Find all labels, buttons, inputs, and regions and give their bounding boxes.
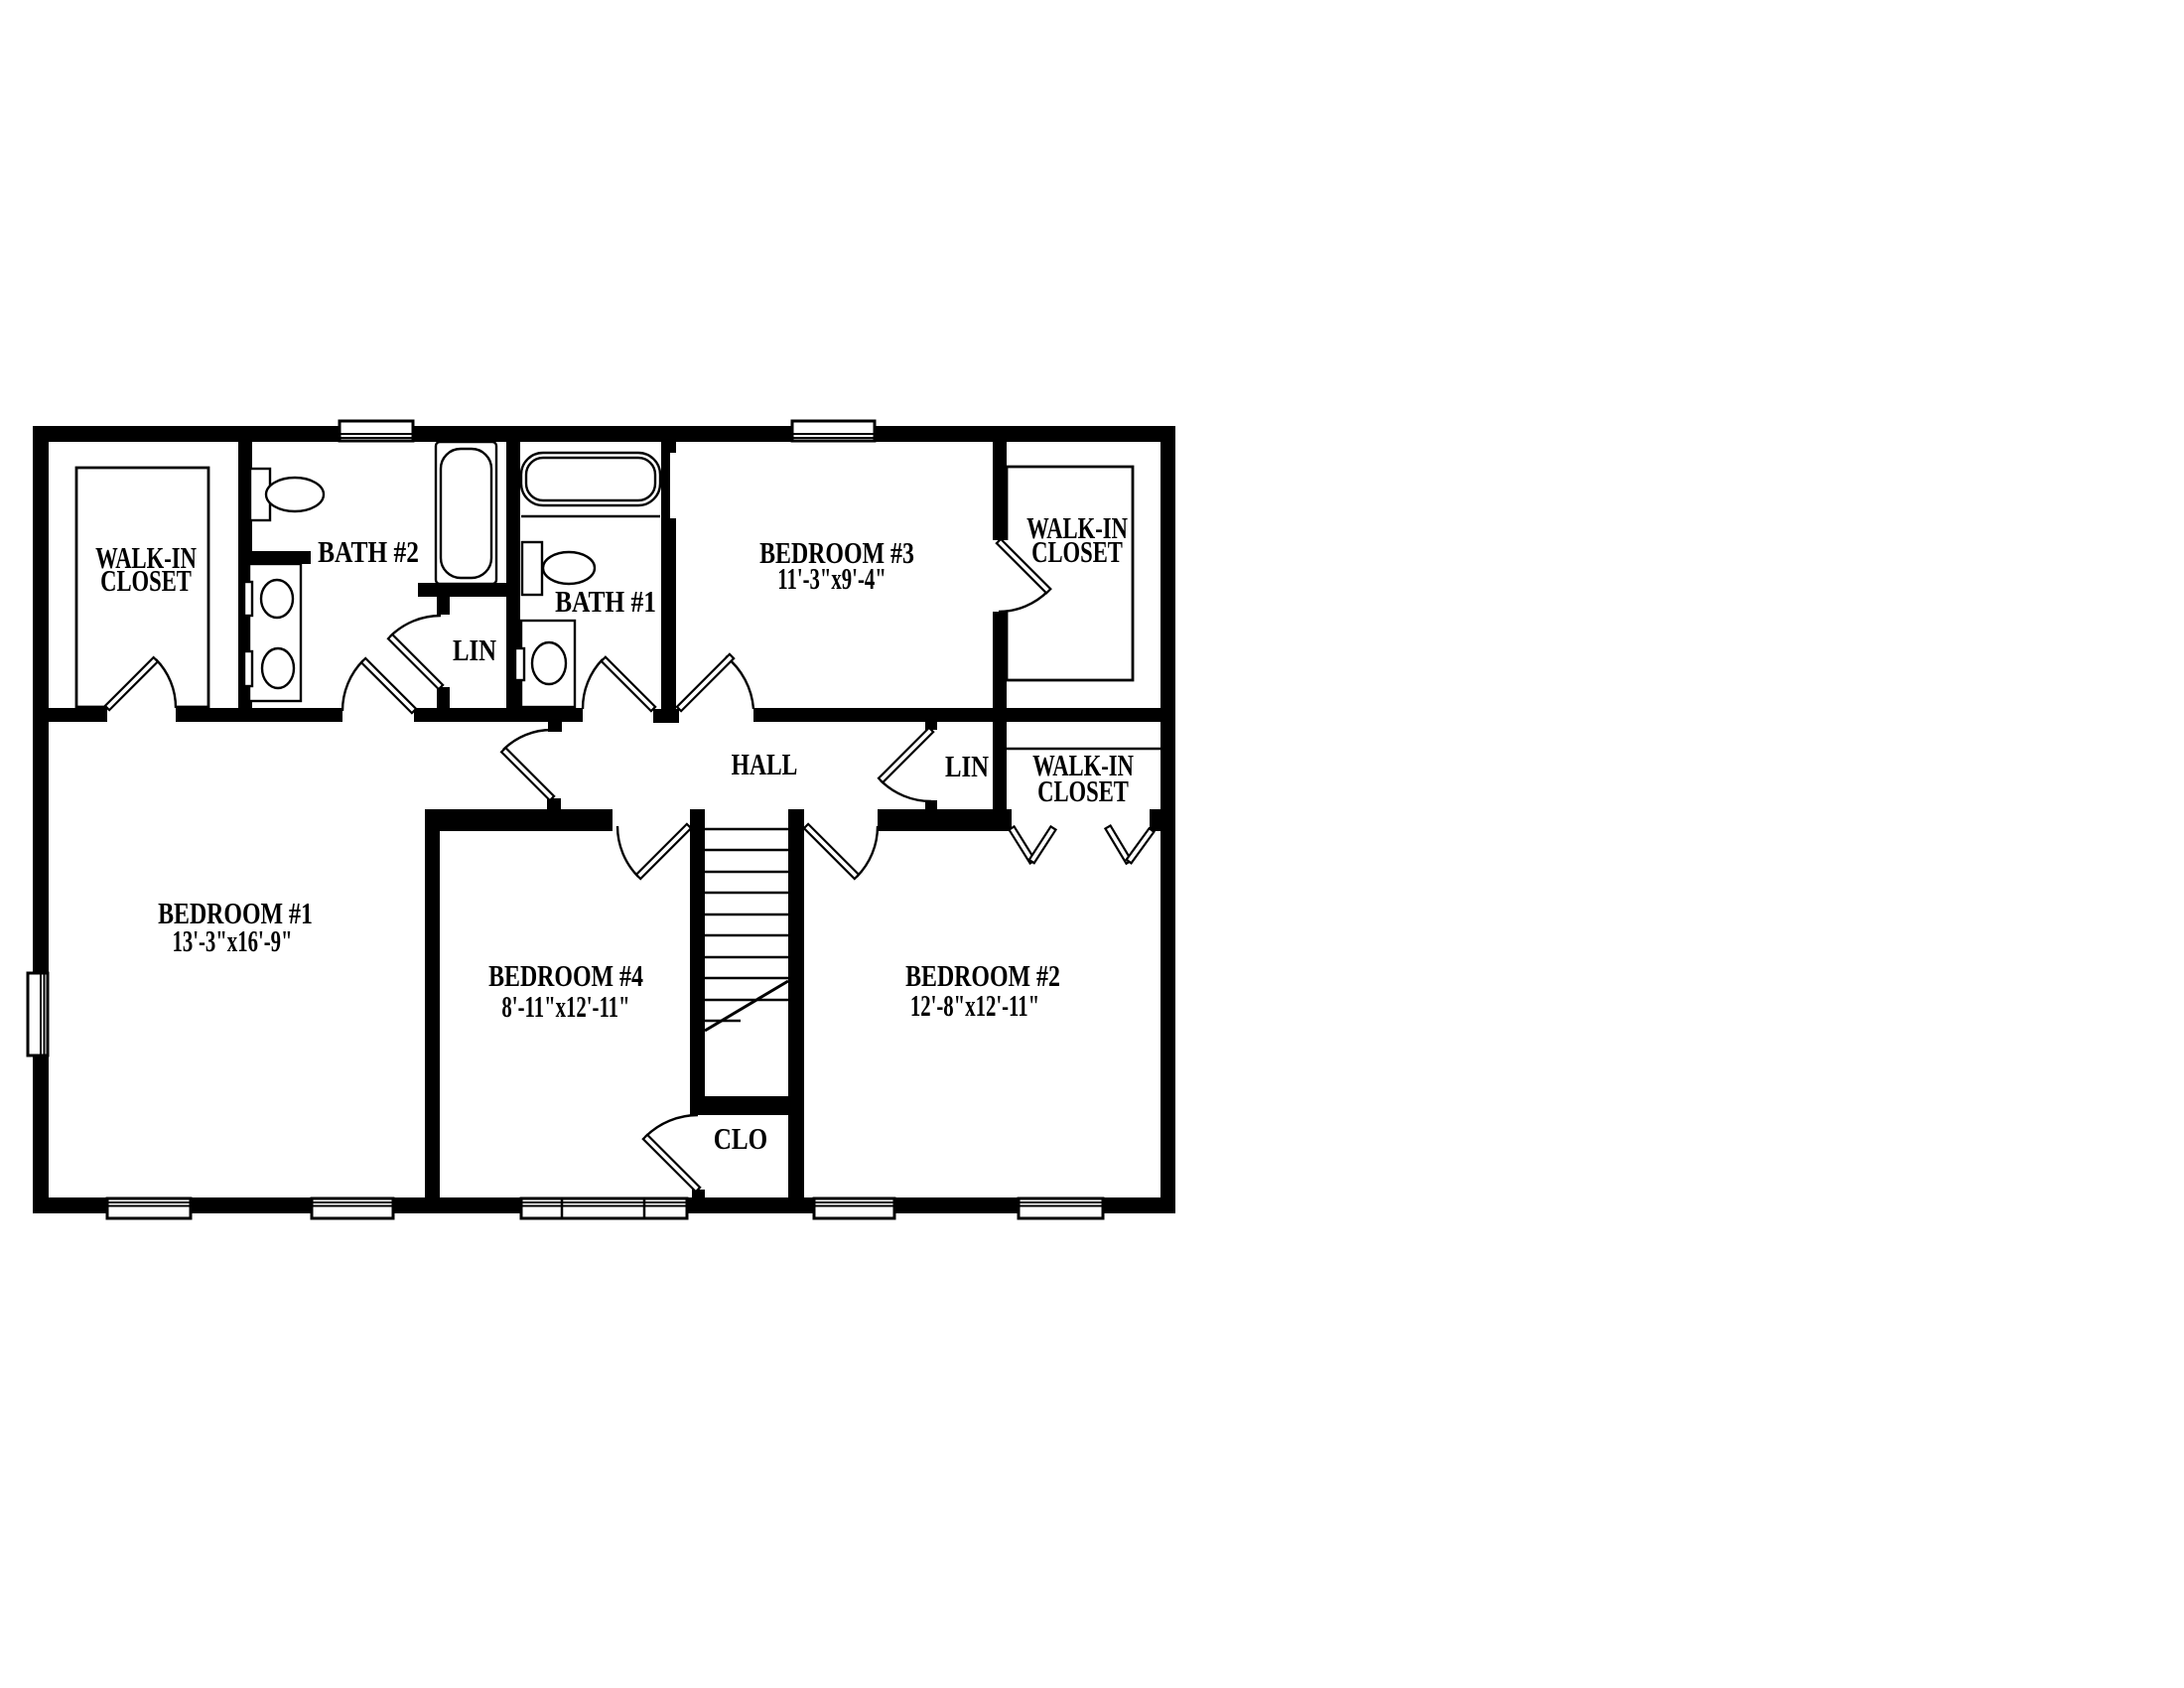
svg-text:BATH #2: BATH #2 — [318, 536, 419, 570]
svg-text:13'-3"x16'-9": 13'-3"x16'-9" — [172, 923, 292, 958]
svg-text:LIN: LIN — [453, 633, 496, 667]
svg-text:BEDROOM #4: BEDROOM #4 — [488, 958, 643, 993]
svg-text:8'-11"x12'-11": 8'-11"x12'-11" — [501, 989, 629, 1024]
svg-text:11'-3"x9'-4": 11'-3"x9'-4" — [777, 561, 887, 596]
svg-text:CLO: CLO — [714, 1123, 767, 1157]
svg-text:CLOSET: CLOSET — [100, 564, 192, 598]
svg-text:12'-8"x12'-11": 12'-8"x12'-11" — [910, 988, 1039, 1023]
svg-text:CLOSET: CLOSET — [1031, 535, 1123, 569]
svg-text:HALL: HALL — [732, 747, 798, 781]
svg-text:BATH #1: BATH #1 — [555, 586, 656, 620]
svg-text:CLOSET: CLOSET — [1037, 774, 1129, 808]
svg-text:LIN: LIN — [945, 750, 989, 783]
